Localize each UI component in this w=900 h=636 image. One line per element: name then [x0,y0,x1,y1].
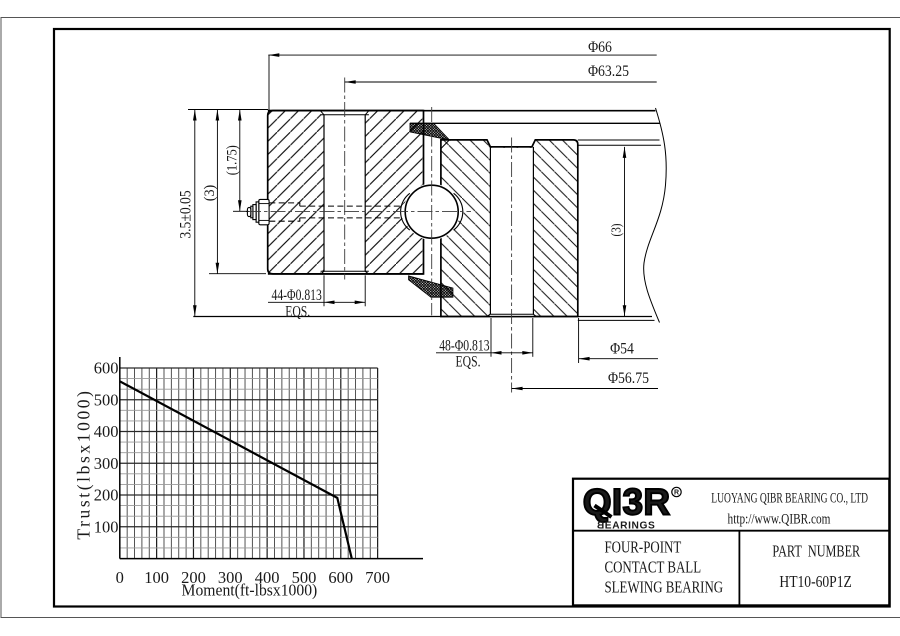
svg-text:(1.75): (1.75) [224,145,241,175]
svg-text:EARINGS: EARINGS [605,520,656,531]
svg-text:600: 600 [328,568,353,587]
svg-text:100: 100 [94,517,119,536]
svg-text:Moment(ft-lbsx1000): Moment(ft-lbsx1000) [182,582,318,599]
svg-text:EQS.: EQS. [456,354,481,371]
svg-text:EQS.: EQS. [285,304,310,321]
svg-text:FOUR-POINT: FOUR-POINT [605,539,682,557]
svg-text:600: 600 [94,359,119,378]
svg-text:R: R [674,490,679,497]
svg-text:48-Φ0.813: 48-Φ0.813 [439,338,489,355]
svg-text:400: 400 [94,422,119,441]
svg-text:SLEWING BEARING: SLEWING BEARING [605,579,724,597]
svg-text:CONTACT BALL: CONTACT BALL [605,559,702,577]
svg-text:LUOYANG QIBR BEARING CO., LTD: LUOYANG QIBR BEARING CO., LTD [711,489,868,506]
svg-text:700: 700 [365,568,390,587]
svg-text:300: 300 [94,454,119,473]
svg-text:HT10-60P1Z: HT10-60P1Z [779,572,851,591]
svg-text:B: B [597,520,604,531]
svg-text:QI3R: QI3R [583,482,671,523]
svg-text:500: 500 [94,390,119,409]
svg-text:Φ66: Φ66 [588,39,612,56]
svg-text:Φ63.25: Φ63.25 [588,63,629,80]
svg-text:PART NUMBER: PART NUMBER [772,543,860,561]
svg-text:200: 200 [94,486,119,505]
svg-text:44-Φ0.813: 44-Φ0.813 [272,287,322,304]
svg-text:(3): (3) [608,223,623,236]
svg-text:(3): (3) [201,185,217,202]
svg-text:0: 0 [116,568,124,587]
svg-text:Trust(lbsx1000): Trust(lbsx1000) [74,388,94,539]
svg-text:Φ54: Φ54 [610,341,634,358]
svg-text:100: 100 [144,568,169,587]
svg-text:3.5±0.05: 3.5±0.05 [178,190,195,238]
svg-text:Φ56.75: Φ56.75 [608,370,649,387]
svg-text:http://www.QIBR.com: http://www.QIBR.com [728,510,831,527]
